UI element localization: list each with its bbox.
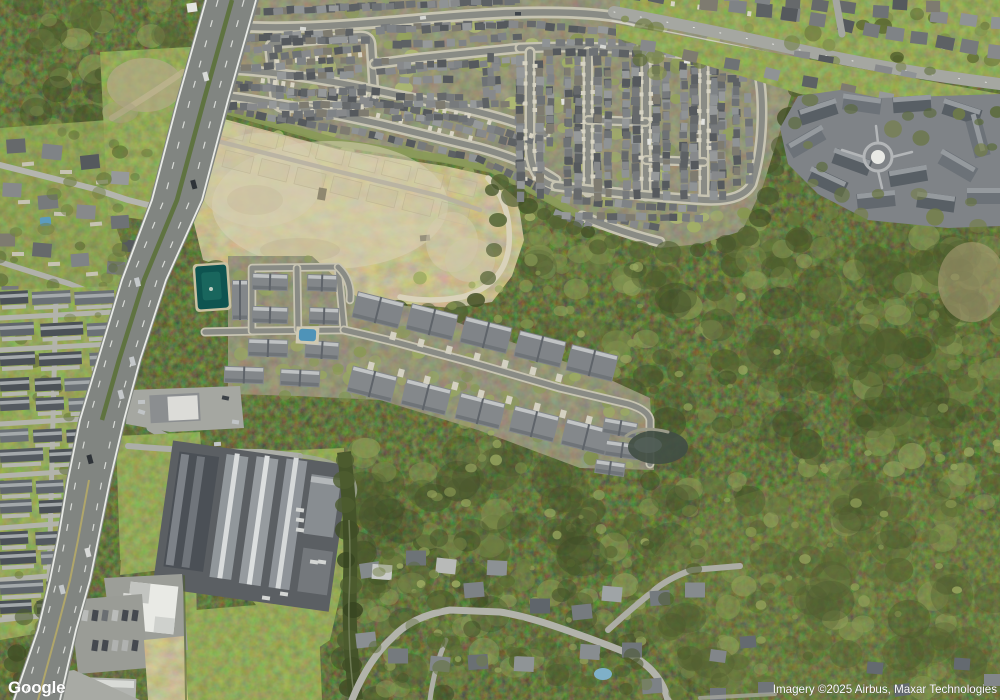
svg-text:Imagery ©2025 Airbus, Maxar Te: Imagery ©2025 Airbus, Maxar Technologies: [773, 683, 997, 696]
svg-text:Google: Google: [8, 678, 65, 697]
